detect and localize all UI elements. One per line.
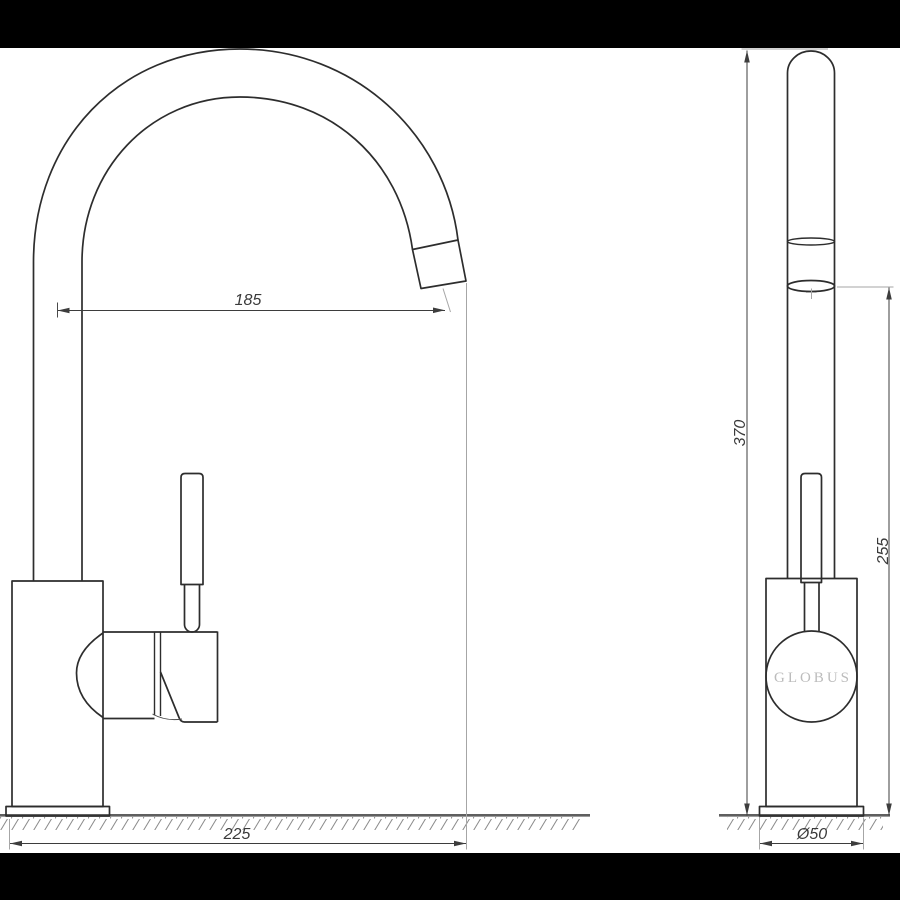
letterbox-band-bottom: [0, 853, 900, 900]
body-front: [766, 579, 857, 807]
brand-label: GLOBUS: [774, 670, 852, 686]
handle-lever-side: [181, 474, 203, 585]
arrowhead-255-bottom: [886, 804, 892, 816]
riser-pipe-front: [788, 51, 835, 579]
letterbox-band-top: [0, 0, 900, 48]
ground-hatch-left: [0, 817, 582, 830]
body-side: [12, 581, 103, 807]
spout-aerator: [413, 240, 467, 289]
dimension-spout-outlet-height: 255: [837, 287, 894, 816]
handle-lever-front: [801, 474, 822, 583]
dim-label-spout-outlet-height: 255: [875, 538, 892, 566]
arrowhead-225-left: [10, 841, 22, 847]
dimension-spout-reach: 185: [58, 289, 451, 318]
faucet-front-view: GLOBUS: [760, 51, 864, 816]
arrowhead-d50-left: [760, 841, 772, 847]
aerator-ring-front: [788, 238, 835, 245]
drawing-canvas: GLOBUS 185 225 370: [0, 0, 900, 900]
dim-label-overall-width: 225: [223, 826, 251, 843]
handle-stem-side: [185, 585, 200, 633]
ext-line-185-right: [443, 289, 451, 313]
dim-label-spout-reach: 185: [235, 292, 262, 309]
dim-label-base-diameter: Ø50: [796, 826, 827, 843]
arrowhead-255-top: [886, 288, 892, 300]
dim-label-overall-height: 370: [732, 420, 749, 447]
faucet-side-view: [6, 49, 466, 816]
housing-slant-bottom: [161, 672, 218, 722]
arrowhead-185-left: [58, 308, 70, 314]
arrowhead-225-right: [454, 841, 466, 847]
arrowhead-d50-right: [851, 841, 863, 847]
spout-inner-contour: [82, 97, 413, 581]
dimension-overall-width: 225: [10, 283, 467, 850]
ground-surface: [0, 815, 890, 830]
faucet-technical-drawing: GLOBUS 185 225 370: [0, 0, 900, 900]
spout-outer-contour: [34, 49, 459, 581]
body-bulge-contour: [77, 633, 104, 718]
arrowhead-185-right: [433, 308, 445, 314]
dimension-overall-height: 370: [732, 49, 828, 816]
arrowhead-370-top: [744, 51, 750, 63]
arrowhead-370-bottom: [744, 804, 750, 816]
